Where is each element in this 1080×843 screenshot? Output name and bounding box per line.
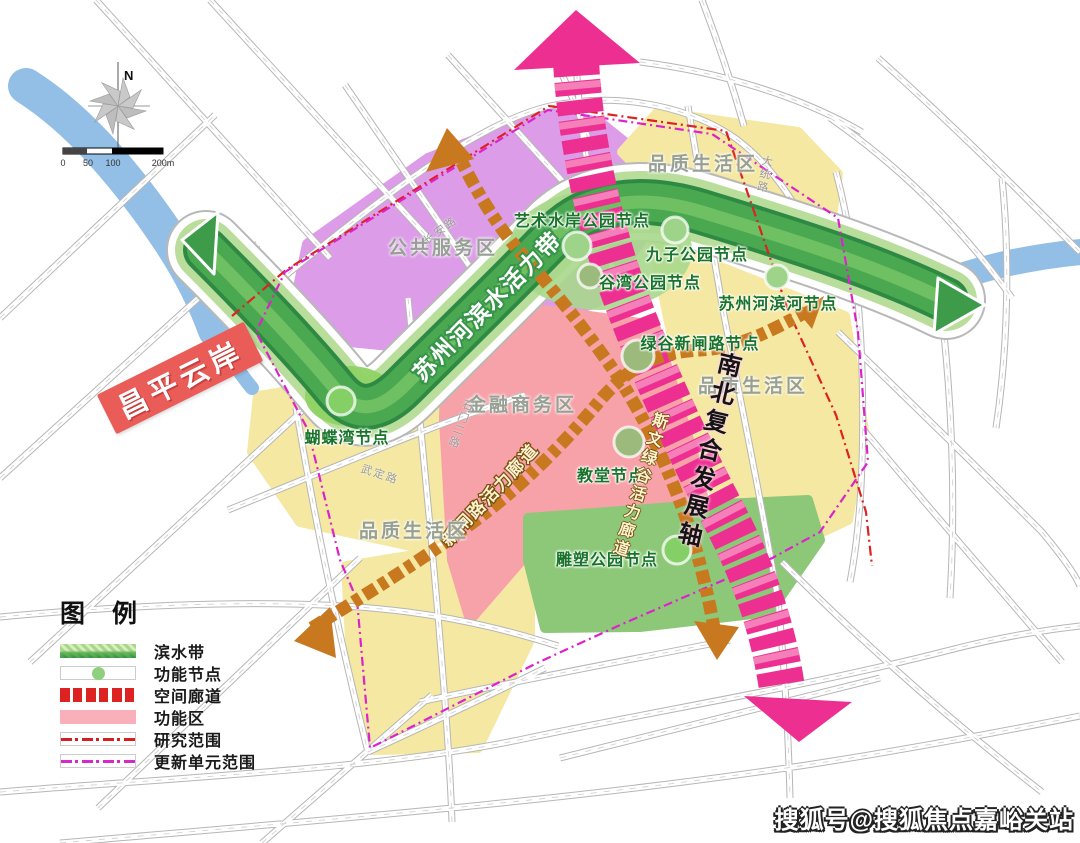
function-node-swatch [60, 666, 136, 680]
watermark: 搜狐号@搜狐焦点嘉峪关站 [775, 800, 1074, 835]
legend-item-research: 研究范围 [60, 728, 290, 750]
node-dot-icon [92, 667, 105, 680]
node-label-suzhou-riverside: 苏州河滨河节点 [718, 290, 837, 314]
corridor-arrow-south [694, 621, 739, 660]
legend-item-label: 功能区 [154, 705, 205, 729]
legend-title: 图 例 [60, 594, 290, 630]
function-zone-swatch [60, 710, 136, 724]
legend-item-label: 滨水带 [154, 639, 205, 663]
update-unit-swatch [60, 754, 136, 768]
legend-item-update-unit: 更新单元范围 [60, 750, 290, 772]
legend-item-node: 功能节点 [60, 662, 290, 684]
scale-tick-0: 0 [60, 158, 65, 168]
space-corridor-swatch [60, 688, 136, 702]
compass-north-label: N [124, 68, 133, 83]
node-label-butterfly-bay: 蝴蝶湾节点 [304, 424, 389, 448]
research-scope-swatch [60, 732, 136, 746]
node-suzhou-riverside-circle [765, 265, 789, 289]
node-jiuzi-park-circle [662, 217, 688, 243]
node-label-greenvalley-xinzha: 绿谷新闸路节点 [640, 330, 759, 354]
scale-tick-200: 200m [152, 158, 175, 168]
legend-item-corridor: 空间廊道 [60, 684, 290, 706]
zone-label-finance: 金融商务区 [467, 390, 577, 417]
legend: 图 例 滨水带 功能节点 空间廊道 功能区 研究范围 更新单元范围 [60, 594, 290, 772]
axis-arrow-south [744, 696, 852, 742]
research-line-icon [61, 738, 135, 741]
node-label-jiuzi-park: 九子公园节点 [646, 241, 748, 265]
legend-item-label: 空间廊道 [154, 683, 222, 707]
zone-label-quality-life-ne: 品质生活区 [648, 149, 758, 176]
legend-item-waterfront: 滨水带 [60, 640, 290, 662]
node-art-waterfront-circle [563, 232, 591, 260]
axis-arrow-north [514, 10, 640, 70]
update-unit-line-icon [61, 760, 135, 763]
node-label-art-waterfront: 艺术水岸公园节点 [514, 207, 650, 231]
scale-tick-100: 100 [105, 158, 120, 168]
scale-bar: 0 50 100 200m [60, 148, 174, 168]
legend-item-zone: 功能区 [60, 706, 290, 728]
legend-item-label: 研究范围 [154, 727, 222, 751]
scale-tick-50: 50 [83, 158, 93, 168]
legend-item-label: 更新单元范围 [154, 749, 256, 773]
legend-item-label: 功能节点 [154, 661, 222, 685]
planning-map: 苏州河滨水活力带 新闸路活力廊道 N [0, 0, 1080, 843]
zone-label-quality-life-w: 品质生活区 [359, 516, 469, 543]
node-butterfly-bay-circle [327, 387, 355, 415]
waterfront-band-swatch [60, 644, 136, 658]
node-label-guwan-park: 谷湾公园节点 [599, 269, 701, 293]
